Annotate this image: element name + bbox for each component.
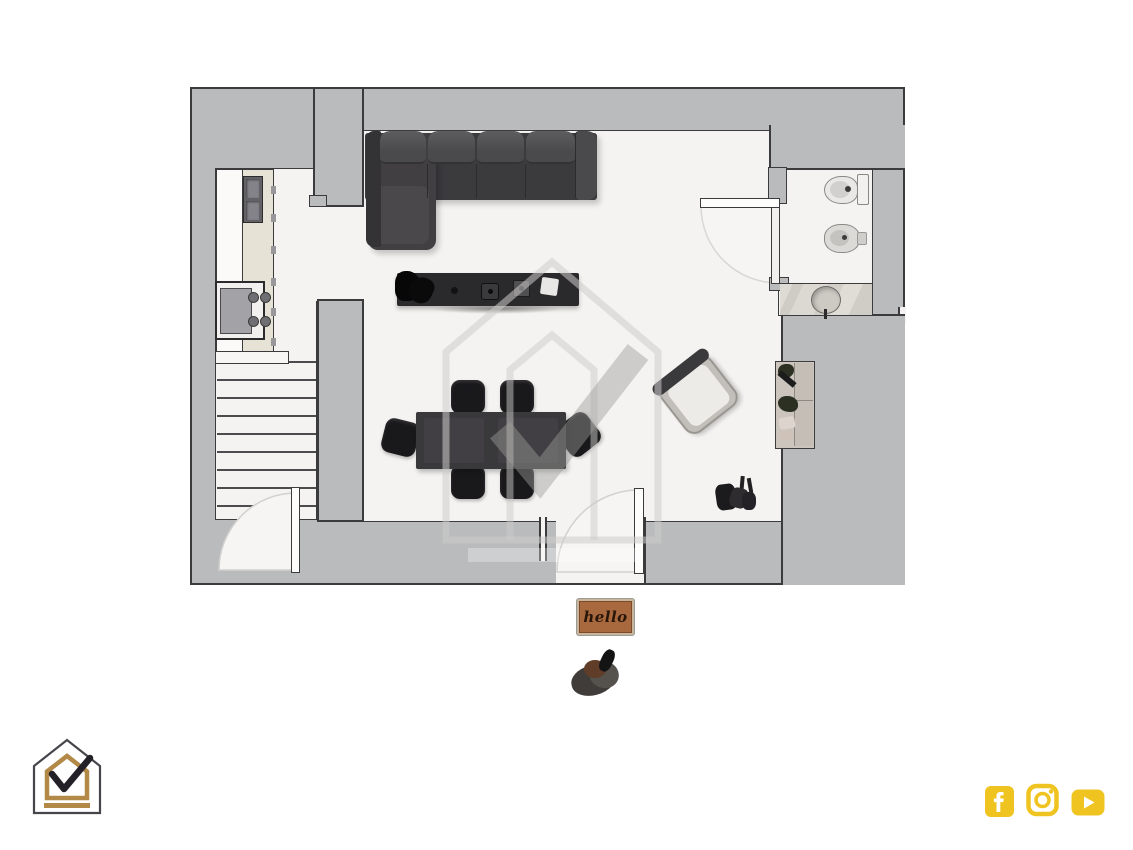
sofa-seam: [525, 164, 526, 198]
stair-tread: [217, 469, 316, 471]
corner-sofa: [365, 131, 597, 252]
bottom-right-wall-block: [781, 314, 905, 585]
caddy-shoe: [742, 492, 756, 510]
pair-of-boots: [571, 649, 629, 701]
entrance-door-leaf: [634, 488, 644, 574]
table-panel: [498, 418, 558, 463]
sink-basin: [246, 179, 259, 198]
console-hob-dot: [519, 286, 524, 291]
stair-tread: [217, 487, 316, 489]
floor-plan-scene: hello: [0, 0, 1133, 850]
dining-chair: [500, 465, 534, 499]
cabinet-handle: [271, 186, 276, 194]
sofa-back-cushion: [428, 131, 475, 164]
sofa-chaise-cushion: [375, 186, 429, 244]
desk-plant: [778, 396, 798, 412]
cabinet-handle: [271, 338, 276, 346]
toilet-drain: [845, 186, 851, 192]
dining-chair: [500, 380, 534, 414]
console-sink: [481, 283, 499, 300]
kitchen-pier-wall: [313, 87, 364, 207]
kitchen-counter-end: [215, 351, 289, 364]
cabinet-handle: [271, 278, 276, 286]
cabinet-handle: [271, 214, 276, 222]
console-tray: [540, 277, 559, 296]
sofa-seam: [427, 164, 428, 198]
sofa-back-cushion: [380, 131, 426, 164]
console-hob: [513, 280, 530, 297]
stair-tread: [217, 451, 316, 453]
bidet-tap: [857, 232, 867, 245]
stair-tread: [217, 505, 316, 507]
stair-door-leaf: [291, 487, 300, 573]
sofa-back-cushion: [477, 131, 524, 164]
media-console: [397, 273, 579, 306]
washbasin-counter: [780, 283, 872, 315]
sofa-seam: [476, 164, 477, 198]
dining-table: [416, 412, 566, 469]
stair-tread: [217, 379, 316, 381]
cabinet-handle: [271, 246, 276, 254]
console-knob: [451, 287, 458, 294]
shoe-caddy: [714, 476, 758, 514]
brand-logo-house-check[interactable]: [28, 736, 108, 820]
kitchen-double-sink: [243, 176, 263, 223]
doormat: hello: [577, 599, 634, 635]
doormat-text: hello: [579, 601, 632, 633]
sofa-armrest-right: [575, 131, 597, 200]
facebook-icon[interactable]: [985, 785, 1014, 818]
bidet: [824, 224, 868, 254]
stair-tread: [217, 397, 316, 399]
top-right-wall-block: [769, 125, 905, 170]
oven-door: [220, 288, 252, 334]
cooktop-burner: [260, 292, 271, 303]
entrance-door-frame: [539, 517, 547, 561]
dining-chair: [451, 465, 485, 499]
table-panel: [424, 418, 484, 463]
sofa-back-cushion: [526, 131, 575, 164]
toilet: [824, 173, 870, 207]
desk-unit: [775, 361, 815, 449]
kitchen-living-opening: [315, 205, 365, 301]
desk-object-light: [778, 429, 793, 441]
oven-unit: [215, 281, 265, 340]
youtube-icon[interactable]: [1071, 787, 1105, 818]
sofa-armrest-left: [366, 131, 381, 247]
cabinet-handle: [271, 308, 276, 316]
stair-tread: [217, 415, 316, 417]
sink-basin: [246, 201, 259, 220]
console-sink-drain: [488, 289, 493, 294]
stair-wall: [317, 299, 364, 522]
cooktop-burner: [248, 316, 259, 327]
cooktop-burner: [260, 316, 271, 327]
bidet-drain: [842, 235, 847, 240]
bathroom-partition-wall: [771, 202, 780, 284]
instagram-icon[interactable]: [1026, 783, 1059, 817]
washbasin-faucet: [824, 309, 827, 319]
toilet-tank: [857, 174, 869, 205]
kitchen-pier-foot: [309, 195, 327, 207]
stair-tread: [217, 433, 316, 435]
entrance-opening: [556, 517, 646, 583]
cooktop-burner: [248, 292, 259, 303]
bathroom-door-leaf: [700, 198, 780, 208]
dining-chair: [451, 380, 485, 414]
